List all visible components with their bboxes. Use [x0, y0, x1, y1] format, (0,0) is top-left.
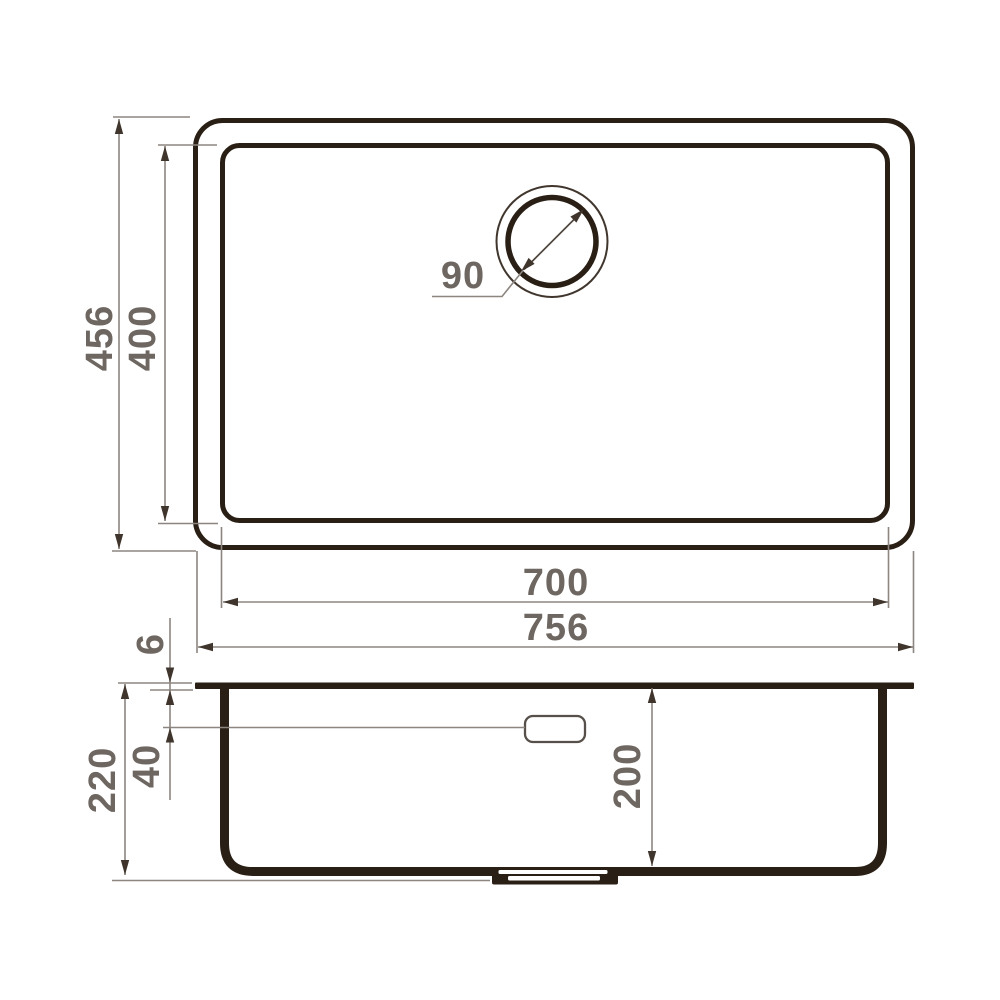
- arrowhead-40-bottom-icon: [166, 728, 174, 743]
- side-drain-fitting: [492, 867, 618, 885]
- arrowhead-200-top-icon: [648, 688, 656, 703]
- label-400: 400: [122, 305, 164, 371]
- label-700: 700: [523, 562, 589, 604]
- arrowhead-220-top-icon: [121, 684, 129, 699]
- side-overflow-outlet: [525, 716, 585, 742]
- dim-6-rim-and-40-overflow: 6 40: [126, 618, 193, 800]
- side-view: [163, 683, 914, 885]
- arrowhead-700-right-icon: [873, 598, 888, 606]
- arrowhead-200-bottom-icon: [648, 851, 656, 866]
- arrowhead-400-bottom-icon: [161, 506, 169, 521]
- arrowhead-6-top-icon: [166, 668, 174, 683]
- drain-diameter-label: 90: [441, 255, 485, 297]
- arrowhead-400-top-icon: [161, 146, 169, 161]
- drain-diameter-arrow-line: [524, 212, 582, 270]
- side-rim-bar: [195, 683, 914, 690]
- arrowhead-456-bottom-icon: [115, 534, 123, 549]
- top-view: 90: [196, 121, 913, 548]
- label-40: 40: [126, 744, 168, 788]
- top-view-outer-rect: [196, 121, 913, 548]
- arrowhead-756-left-icon: [198, 643, 213, 651]
- arrowhead-6-bottom-icon: [166, 690, 174, 705]
- arrowhead-456-top-icon: [115, 119, 123, 134]
- label-200: 200: [607, 743, 649, 809]
- dim-400-inner-depth: 400: [122, 145, 218, 524]
- label-220: 220: [82, 747, 124, 813]
- side-drain-slot-upper: [499, 870, 608, 874]
- sink-drawing-canvas: 90 456 400 700 756: [0, 0, 1000, 1000]
- label-6: 6: [130, 633, 172, 655]
- top-view-inner-rect: [223, 146, 888, 521]
- label-756: 756: [523, 607, 589, 649]
- arrowhead-220-bottom-icon: [121, 860, 129, 875]
- arrowhead-756-right-icon: [898, 643, 913, 651]
- arrowhead-700-left-icon: [223, 598, 238, 606]
- dim-200-bowl-depth: 200: [607, 688, 656, 866]
- side-drain-slot-lower: [508, 876, 600, 881]
- label-456: 456: [79, 305, 121, 371]
- dim-700-inner-width: 700: [222, 527, 889, 608]
- technical-drawing-svg: 90 456 400 700 756: [0, 0, 1000, 1000]
